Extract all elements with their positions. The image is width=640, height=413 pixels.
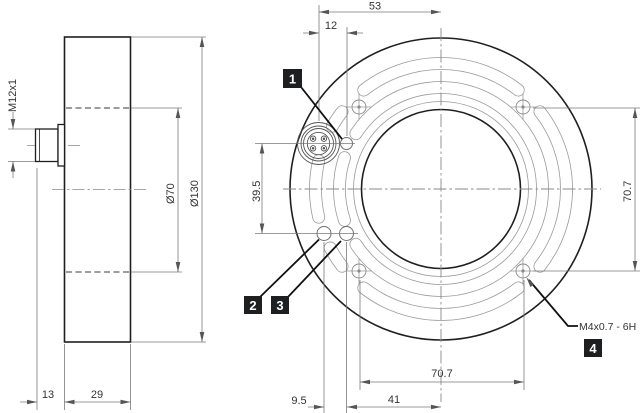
- dim-arrowhead: [260, 224, 265, 234]
- connector-thread-body: [36, 129, 59, 162]
- dim-arrowhead: [347, 405, 357, 410]
- callout-1: 1: [283, 69, 302, 88]
- dim-arrowhead: [176, 262, 181, 272]
- callout-leader-lines: [260, 87, 578, 326]
- dim-arrowhead: [514, 380, 524, 385]
- dim-pin-spacing: 9.5: [291, 395, 306, 407]
- mount-thread-spec: M4x0.7 - 6H: [579, 321, 636, 333]
- m4-hole: [510, 94, 536, 120]
- callout-3-number: 3: [276, 298, 283, 313]
- encoder-dimension-drawing: M12x1 Ø70 Ø130 13 29: [0, 0, 640, 413]
- front-extension-lines: [255, 5, 640, 413]
- dim-pin-offset: 12: [325, 20, 337, 32]
- dim-arrowhead: [309, 31, 319, 36]
- dim-body-depth: 29: [91, 389, 103, 401]
- m4-hole: [510, 258, 536, 284]
- dim-arrowhead: [260, 144, 265, 154]
- mount-slot: [326, 106, 348, 133]
- dim-arrowhead: [314, 405, 324, 410]
- dim-connector-length: 13: [42, 389, 54, 401]
- m4-hole: [346, 258, 372, 284]
- dim-outer-diameter: Ø130: [189, 180, 201, 207]
- dim-connector-to-pin: 39.5: [251, 181, 263, 202]
- callout-4: 4: [584, 339, 602, 357]
- dim-arrowhead: [200, 332, 205, 342]
- dim-arrowhead: [65, 400, 75, 405]
- side-view: M12x1 Ø70 Ø130 13 29: [7, 37, 206, 410]
- dim-arrowhead: [319, 10, 329, 15]
- dim-connector-offset: 53: [369, 1, 381, 13]
- m4-hole: [346, 94, 372, 120]
- dim-arrowhead: [633, 261, 638, 271]
- dim-arrowhead: [200, 37, 205, 47]
- callout-2: 2: [244, 296, 262, 314]
- dim-arrowhead: [431, 10, 441, 15]
- dim-arrowhead: [11, 162, 16, 172]
- front-view: 53 12 39.5 70.7 70.7 41 9.5 M4x0.7 - 6H: [251, 1, 640, 413]
- front-dimension-lines: [262, 12, 635, 407]
- dim-hole-spacing-horizontal: 70.7: [431, 368, 452, 380]
- dim-arrowhead: [121, 400, 131, 405]
- dim-arrowhead: [633, 108, 638, 118]
- callout-2-number: 2: [249, 298, 256, 313]
- callout-3: 3: [271, 296, 289, 314]
- callout-4-number: 4: [589, 341, 597, 356]
- dim-hole-spacing-vertical: 70.7: [622, 181, 634, 202]
- dim-bore-diameter: Ø70: [165, 183, 177, 204]
- dim-arrowhead: [27, 400, 37, 405]
- dim-arrowhead: [347, 31, 357, 36]
- dim-thread-label: M12x1: [7, 79, 19, 112]
- dim-pin-to-center: 41: [388, 394, 400, 406]
- callout-1-number: 1: [289, 72, 296, 87]
- connector-flange: [58, 125, 65, 167]
- dim-arrowhead: [176, 108, 181, 118]
- dim-arrowhead: [431, 405, 441, 410]
- technical-drawing-page: M12x1 Ø70 Ø130 13 29: [0, 0, 640, 413]
- dim-arrowhead: [360, 380, 370, 385]
- dim-arrowhead: [11, 119, 16, 129]
